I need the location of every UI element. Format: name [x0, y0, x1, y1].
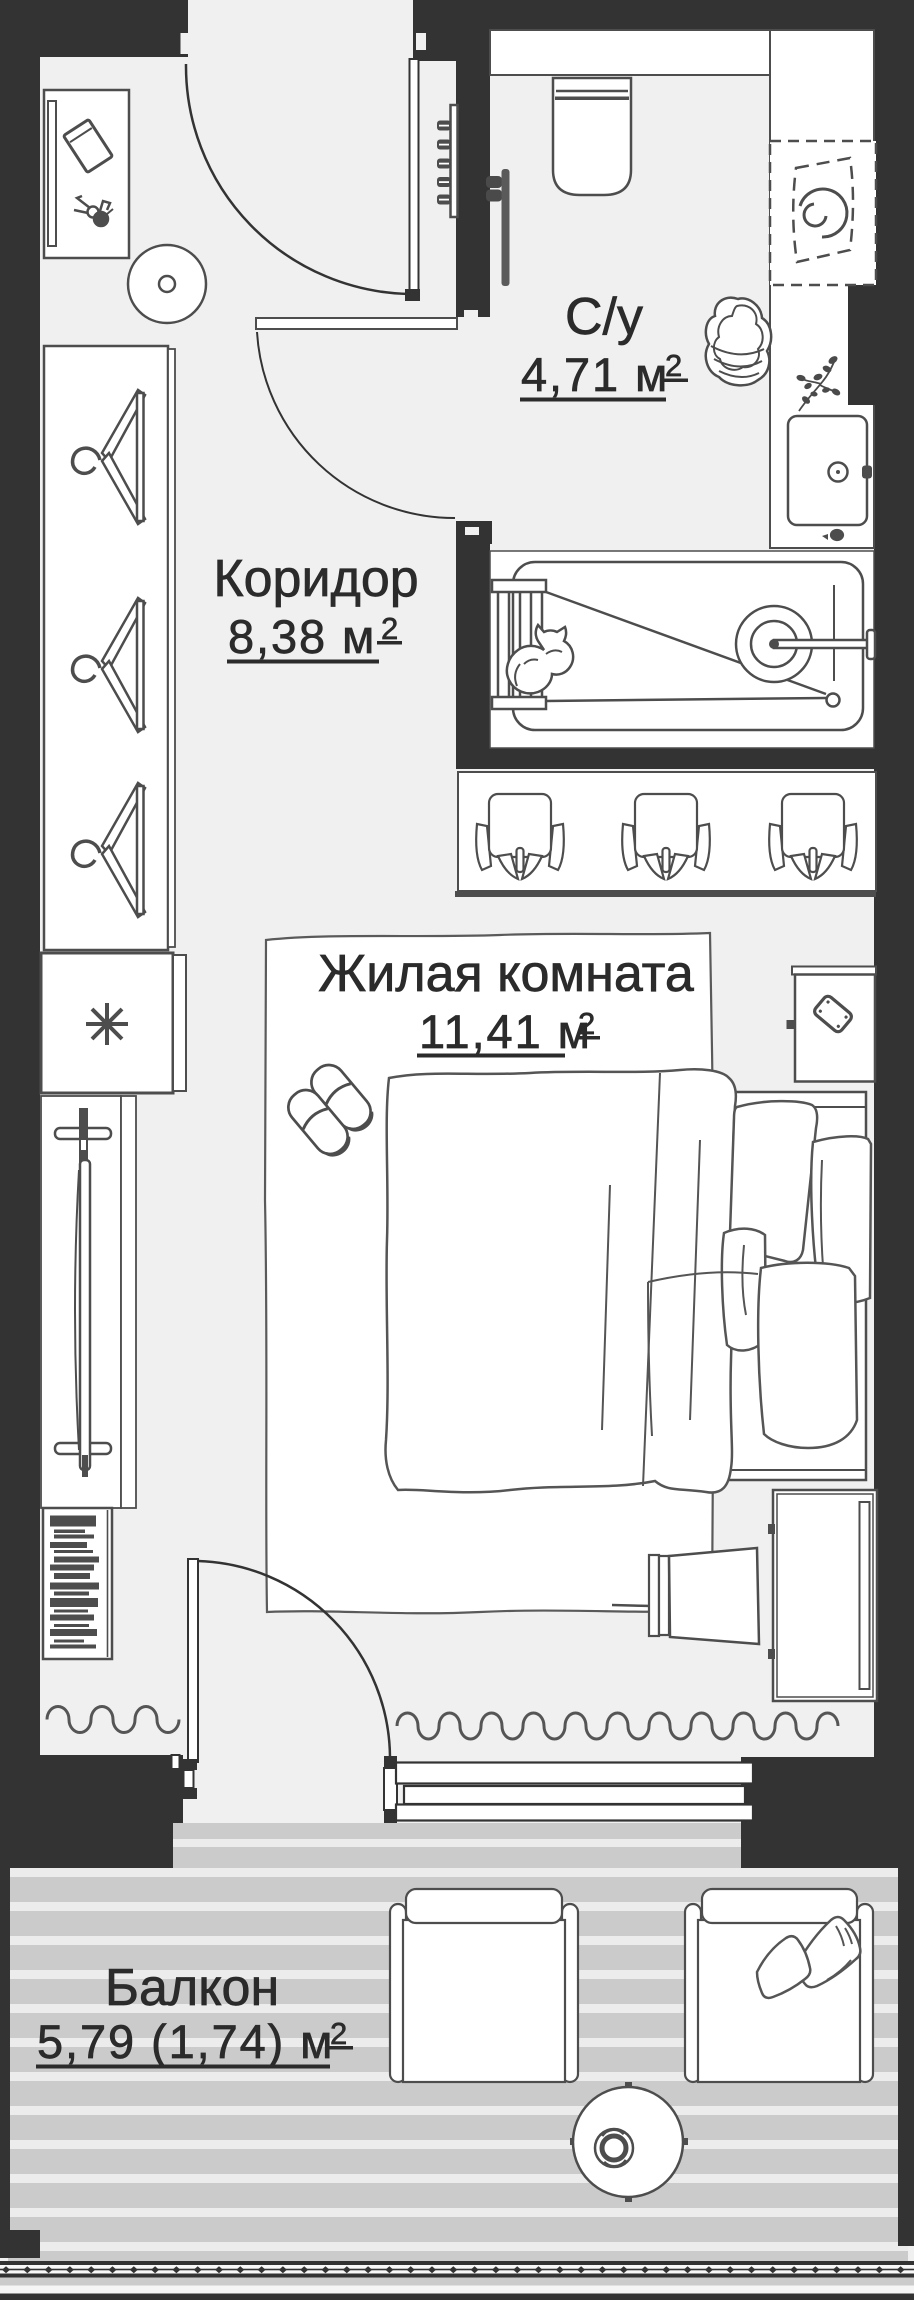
svg-text:Балкон: Балкон [105, 1959, 279, 2017]
svg-text:4,71 м: 4,71 м [521, 348, 669, 401]
svg-text:2: 2 [381, 611, 398, 646]
svg-text:5,79 (1,74) м: 5,79 (1,74) м [37, 2015, 334, 2068]
svg-text:Жилая комната: Жилая комната [318, 945, 694, 1003]
svg-text:Коридор: Коридор [213, 550, 418, 608]
svg-text:С/у: С/у [565, 288, 643, 346]
svg-text:2: 2 [578, 1006, 595, 1041]
svg-text:8,38 м: 8,38 м [228, 610, 376, 663]
svg-text:2: 2 [665, 348, 682, 383]
svg-text:11,41 м: 11,41 м [419, 1005, 592, 1058]
svg-text:2: 2 [330, 2016, 347, 2051]
